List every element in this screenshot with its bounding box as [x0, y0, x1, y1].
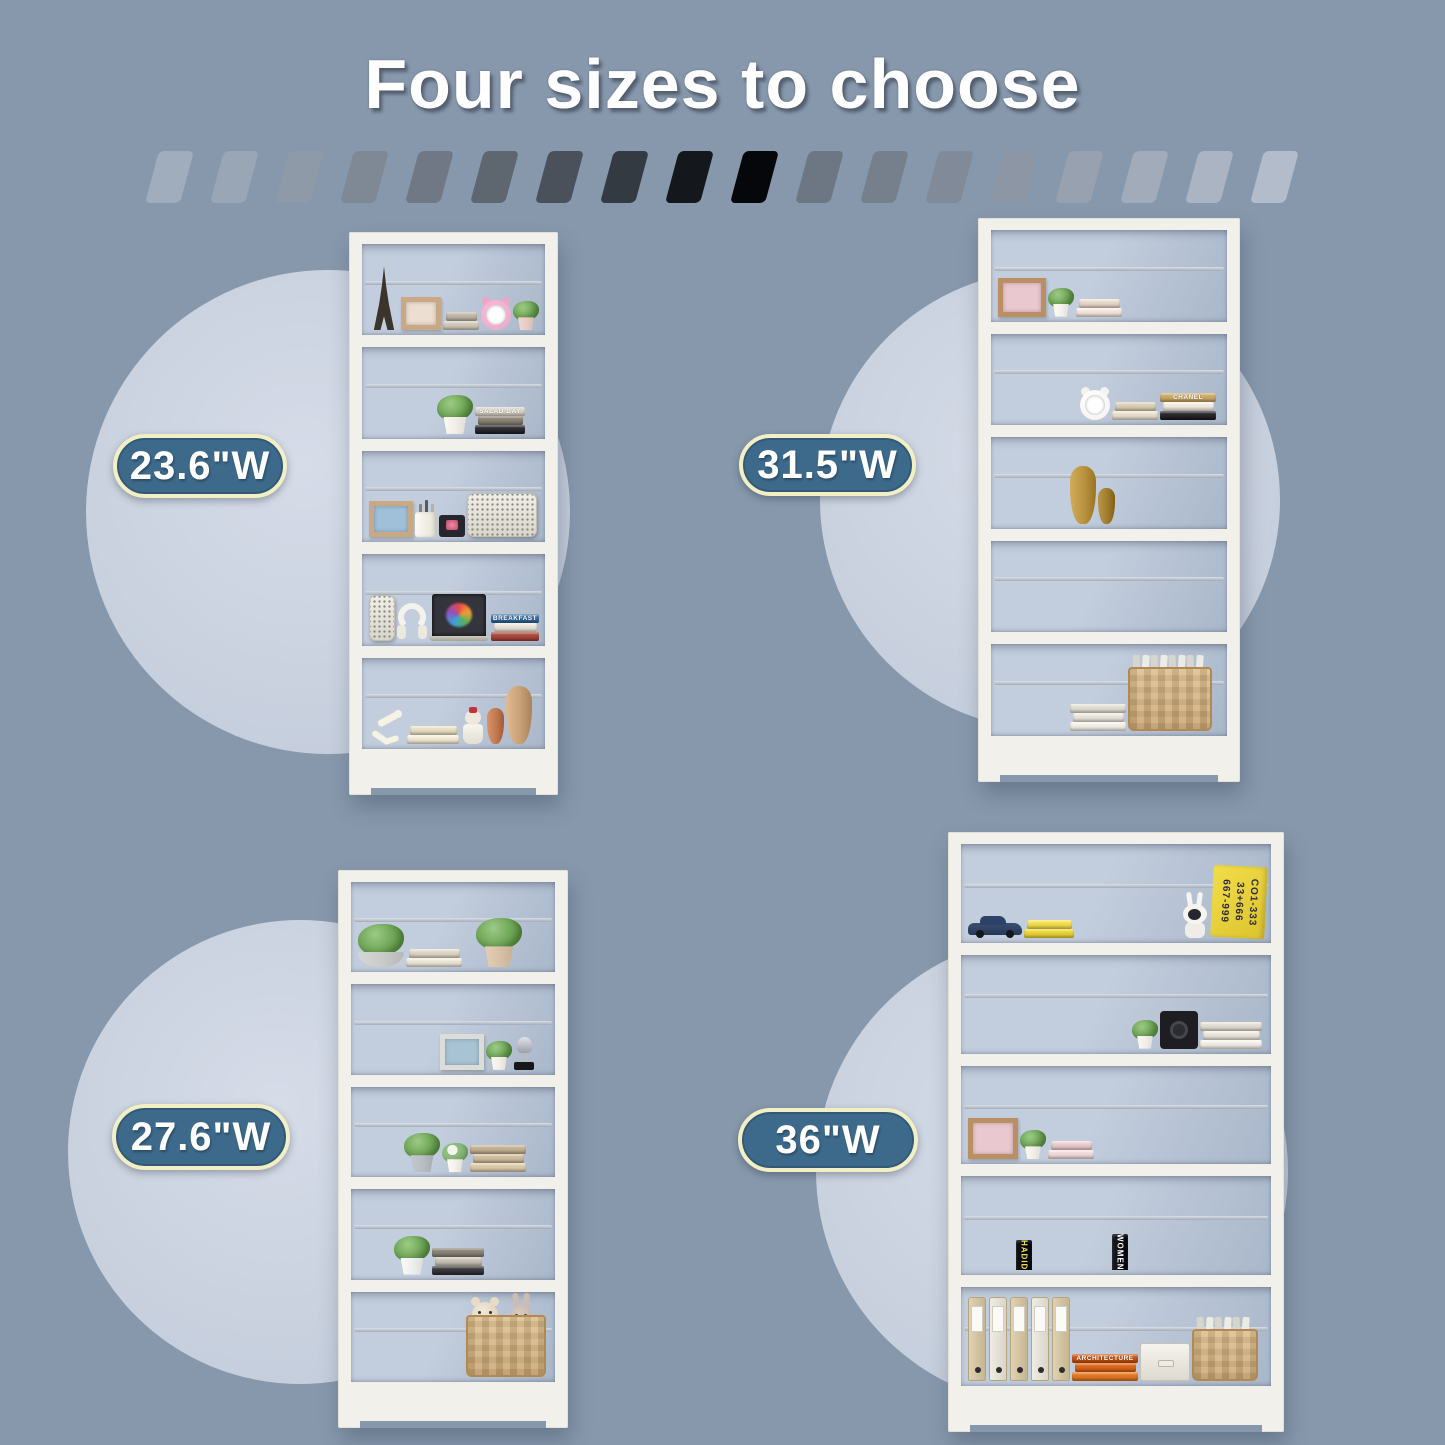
box-handle: [1158, 1360, 1174, 1367]
wicker-basket-icon: [1128, 655, 1212, 731]
book-run: WOMEN: [1112, 1234, 1128, 1271]
book-flat: [407, 735, 459, 744]
teddy-eye: [478, 1311, 481, 1314]
shelf-compartment: 667-99933+666CO1-333: [961, 844, 1271, 943]
teddy-eye: [489, 1311, 492, 1314]
trophy-base: [514, 1062, 534, 1070]
stripe: [470, 151, 519, 203]
book-stack: [1048, 1141, 1094, 1159]
vase-icon: [506, 686, 532, 744]
book-flat: [1027, 920, 1072, 929]
plant-icon: [404, 1133, 440, 1172]
binder-hole: [1038, 1367, 1044, 1373]
vase-icon: [487, 708, 504, 744]
plant-pot: [446, 1159, 464, 1172]
stripe: [340, 151, 389, 203]
book-stack-title: BREAKFAST: [491, 614, 539, 623]
shelf-compartment: [351, 1189, 555, 1279]
shelf-compartment: [351, 882, 555, 972]
plant-icon: [486, 1041, 512, 1070]
photo-frame-icon: [440, 1034, 484, 1070]
shelf-compartment: [991, 541, 1227, 633]
book-flat: [1112, 411, 1158, 420]
book-flat: [1073, 713, 1124, 722]
book-spine-labeled: WOMEN: [1112, 1234, 1128, 1271]
shelf-back-brace: [365, 384, 542, 388]
laptop-base: [429, 636, 489, 641]
speaker-ring: [1170, 1021, 1188, 1039]
binder-label: [971, 1306, 983, 1332]
trophy-stem: [522, 1053, 526, 1062]
vase-icon: [1098, 488, 1115, 524]
book-stack: [470, 1145, 526, 1172]
number-book-text: CO1-333: [1246, 878, 1259, 926]
shelf-compartment: [961, 955, 1271, 1054]
stripe: [275, 151, 324, 203]
shelf-back-brace: [354, 1225, 552, 1229]
book-stack: [432, 1248, 484, 1275]
plant-icon: [1048, 288, 1074, 317]
book-flat: [473, 1154, 524, 1163]
book-flat: [1076, 308, 1122, 317]
book-stack: [1024, 920, 1074, 938]
book-flat: [406, 958, 462, 967]
plant-icon: [358, 924, 404, 967]
bookcase-31-5-inch: CHANEL: [978, 218, 1240, 782]
binder-icon: [968, 1297, 986, 1381]
size-label-pill-36: 36"W: [738, 1108, 918, 1172]
shelf-compartment: SALAD DAY: [362, 347, 545, 438]
shelf-compartment: [991, 644, 1227, 736]
ear-cup: [397, 625, 406, 639]
plant-pot: [399, 1258, 425, 1275]
book-spine: [413, 433, 421, 434]
astro-head: [1183, 904, 1207, 924]
binder-icon: [989, 1297, 1007, 1381]
book-run: HADID: [1016, 1240, 1032, 1270]
shelf-compartment: [362, 451, 545, 542]
ear-cup: [418, 625, 427, 639]
screen-burst: [446, 603, 472, 627]
number-book-text: 667-999: [1218, 879, 1231, 923]
photo-frame-icon: [401, 297, 441, 330]
binder-hole: [975, 1367, 981, 1373]
binder-icon: [1010, 1297, 1028, 1381]
bookcase-36-inch: 667-99933+666CO1-333HADIDWOMENARCHITECTU…: [948, 832, 1284, 1432]
plant-icon: [394, 1236, 430, 1275]
shelf-compartment: [351, 984, 555, 1074]
book-stack: [406, 949, 462, 967]
shelf-compartment: CHANEL: [991, 334, 1227, 426]
stripe: [730, 151, 779, 203]
size-label-pill-31-5: 31.5"W: [739, 434, 916, 496]
book-flat: [1051, 1141, 1092, 1150]
book-spine: [1084, 1047, 1092, 1048]
book-stack-title: SALAD DAY: [475, 407, 525, 416]
basket-body: [466, 1315, 546, 1377]
page-title: Four sizes to choose: [0, 44, 1445, 124]
book-flat: [446, 312, 477, 321]
shelf-compartment: [362, 658, 545, 749]
binder-label: [1034, 1306, 1046, 1332]
plant-pot: [1052, 304, 1070, 317]
plant-pot: [483, 946, 515, 967]
bookcase-foot-notch: [1000, 775, 1218, 782]
vase-icon: [1070, 466, 1096, 524]
bookcase-foot-notch: [371, 788, 536, 795]
wicker-basket-icon: [1192, 1317, 1258, 1381]
stripe: [535, 151, 584, 203]
tv-screen: [446, 520, 458, 530]
shelf-back-brace: [964, 1216, 1268, 1220]
shelf-compartment: [362, 244, 545, 335]
shelf-compartment: [991, 437, 1227, 529]
book-flat: [470, 1163, 526, 1172]
plant-icon: [1020, 1130, 1046, 1159]
book-spine-title: HADID: [1020, 1240, 1029, 1270]
book-flat: [432, 1266, 484, 1275]
shelf-compartment: [351, 1087, 555, 1177]
binder-hole: [1059, 1367, 1065, 1373]
plant-pot: [517, 317, 535, 330]
book-flat: [1048, 1150, 1094, 1159]
book-flat: [1072, 1372, 1138, 1381]
book-spine: [494, 1273, 502, 1274]
laptop-icon: [429, 594, 489, 641]
shelf-back-brace: [354, 1021, 552, 1025]
stripe: [405, 151, 454, 203]
stripe: [210, 151, 259, 203]
book-flat: [478, 416, 523, 425]
car-roof: [980, 916, 1006, 925]
storage-box-icon: [1140, 1343, 1190, 1381]
eiffel-tower-icon: [369, 266, 399, 330]
book-spine: [546, 1171, 555, 1173]
speaker-box-icon: [1160, 1011, 1198, 1049]
photo-frame-icon: [968, 1118, 1018, 1159]
bookcase-foot-notch: [360, 1421, 546, 1428]
binder-hole: [996, 1367, 1002, 1373]
plant-pot: [490, 1057, 508, 1070]
book-flat: [432, 1248, 484, 1257]
stripe: [1250, 151, 1299, 203]
runner-figurine-icon: [369, 710, 405, 744]
book-flat: [1203, 1031, 1260, 1040]
stripe: [145, 151, 194, 203]
binder-icon: [1031, 1297, 1049, 1381]
book-flat: [1070, 704, 1126, 713]
size-label-pill-23-6: 23.6"W: [113, 434, 287, 498]
shelf-compartment: HADIDWOMEN: [961, 1176, 1271, 1275]
book-stack: BREAKFAST: [491, 614, 539, 641]
plant-pot: [442, 417, 468, 434]
book-flat: [491, 632, 539, 641]
book-spine-title: WOMEN: [1116, 1234, 1125, 1271]
shelf-back-brace: [994, 577, 1224, 581]
pencil-cup-icon: [415, 501, 437, 537]
book-flat: [1115, 402, 1156, 411]
astro-body: [1185, 922, 1205, 938]
product-size-infographic: Four sizes to choose SALAD DAYBREAKFAST …: [0, 0, 1445, 1445]
astro-visor: [1188, 909, 1201, 920]
alarm-clock-icon: [481, 298, 511, 330]
book-flat: [1075, 1363, 1136, 1372]
book-stack: [1200, 1022, 1262, 1049]
number-book-icon: 667-99933+666CO1-333: [1210, 864, 1268, 939]
book-stack-title: CHANEL: [1160, 393, 1216, 402]
book-spine-labeled: HADID: [1016, 1240, 1032, 1270]
cup-body: [415, 512, 437, 537]
bookcase-foot-notch: [970, 1425, 1262, 1432]
plant-pot: [1136, 1036, 1154, 1049]
book-flat: [1200, 1022, 1262, 1031]
stripe: [925, 151, 974, 203]
book-flat: [435, 1257, 482, 1266]
binder-label: [992, 1306, 1004, 1332]
book-flat: [1160, 411, 1216, 420]
doll-body: [463, 724, 483, 744]
book-stack: CHANEL: [1160, 393, 1216, 420]
shelf-back-brace: [964, 1105, 1268, 1109]
binder-icon: [1052, 1297, 1070, 1381]
binder-label: [1013, 1306, 1025, 1332]
book-stack-title: ARCHITECTURE: [1072, 1354, 1138, 1363]
plant-icon: [1132, 1020, 1158, 1049]
number-book-text: 33+666: [1232, 882, 1245, 922]
plant-icon: [476, 918, 522, 967]
book-spine: [1102, 625, 1114, 627]
headphones-icon: [397, 603, 427, 641]
shelf-back-brace: [994, 474, 1224, 478]
book-flat: [409, 949, 460, 958]
book-stack: [1112, 402, 1158, 420]
mini-tv-icon: [439, 515, 465, 537]
plant-pot: [409, 1155, 435, 1172]
basket-body: [1192, 1329, 1258, 1381]
doll-bow: [469, 707, 477, 713]
trophy-icon: [514, 1037, 534, 1070]
book-flat: [1024, 929, 1074, 938]
book-spine: [1132, 315, 1140, 316]
book-flat: [1163, 402, 1214, 411]
plant-icon: [437, 395, 473, 434]
stripe: [990, 151, 1039, 203]
speaker-icon: [369, 595, 395, 641]
car-wheel: [976, 930, 984, 938]
size-label-text: 23.6"W: [130, 444, 271, 489]
shelf-back-brace: [354, 918, 552, 922]
book-stack: [443, 312, 479, 330]
shelf-back-brace: [994, 370, 1224, 374]
book-flat: [470, 1145, 526, 1154]
doll-figurine-icon: [461, 708, 485, 744]
toy-car-icon: [968, 916, 1022, 938]
stripe: [1055, 151, 1104, 203]
book-stack: [1070, 704, 1126, 731]
book-flat: [443, 321, 479, 330]
book-spine: [1126, 1158, 1138, 1160]
stripe: [795, 151, 844, 203]
shelf-back-brace: [354, 1123, 552, 1127]
shelf-compartment: BREAKFAST: [362, 554, 545, 645]
speaker-icon: [467, 493, 537, 537]
book-stack: [407, 726, 459, 744]
bookcase-27-6-inch: [338, 870, 568, 1428]
laptop-screen: [432, 594, 486, 636]
plant-pot: [1024, 1146, 1042, 1159]
decorative-stripes: [152, 150, 1292, 204]
book-spine: [1171, 522, 1181, 524]
binder-row: [968, 1297, 1070, 1381]
book-flat: [475, 425, 525, 434]
book-spine: [1166, 936, 1176, 938]
binder-hole: [1017, 1367, 1023, 1373]
shelf-compartment: ARCHITECTURE: [961, 1287, 1271, 1386]
book-flat: [1070, 722, 1126, 731]
stripe: [665, 151, 714, 203]
shelf-back-brace: [365, 281, 542, 285]
book-flat: [494, 623, 537, 632]
bookcase-23-6-inch: SALAD DAYBREAKFAST: [349, 232, 558, 795]
shelf-back-brace: [994, 267, 1224, 271]
plant-foliage: [476, 918, 522, 950]
wicker-basket-icon: [466, 1303, 546, 1377]
book-flat: [410, 726, 457, 735]
bunny-astronaut-icon: [1180, 892, 1210, 938]
photo-frame-icon: [369, 501, 413, 537]
alarm-clock-icon: [1080, 388, 1110, 420]
trophy-cup: [517, 1037, 532, 1053]
book-flat: [1079, 299, 1120, 308]
plant-icon: [442, 1143, 468, 1172]
photo-frame-icon: [998, 278, 1046, 317]
book-flat: [1200, 1040, 1262, 1049]
size-label-text: 31.5"W: [757, 443, 898, 488]
size-label-text: 36"W: [775, 1118, 880, 1163]
stripe: [1185, 151, 1234, 203]
shelf-compartment: [961, 1066, 1271, 1165]
book-stack: ARCHITECTURE: [1072, 1354, 1138, 1381]
binder-label: [1055, 1306, 1067, 1332]
shelf-back-brace: [365, 487, 542, 491]
plant-pot: [358, 952, 404, 967]
shelf-back-brace: [964, 994, 1268, 998]
stripe: [860, 151, 909, 203]
book-stack: [1076, 299, 1122, 317]
basket-body: [1128, 667, 1212, 731]
shelf-compartment: [991, 230, 1227, 322]
book-stack: SALAD DAY: [475, 407, 525, 434]
size-label-pill-27-6: 27.6"W: [112, 1104, 290, 1170]
stripe: [1120, 151, 1169, 203]
stripe: [600, 151, 649, 203]
plant-icon: [513, 301, 539, 330]
size-label-text: 27.6"W: [131, 1115, 272, 1160]
figurine-head: [394, 710, 402, 718]
shelf-compartment: [351, 1292, 555, 1382]
car-wheel: [1006, 930, 1014, 938]
